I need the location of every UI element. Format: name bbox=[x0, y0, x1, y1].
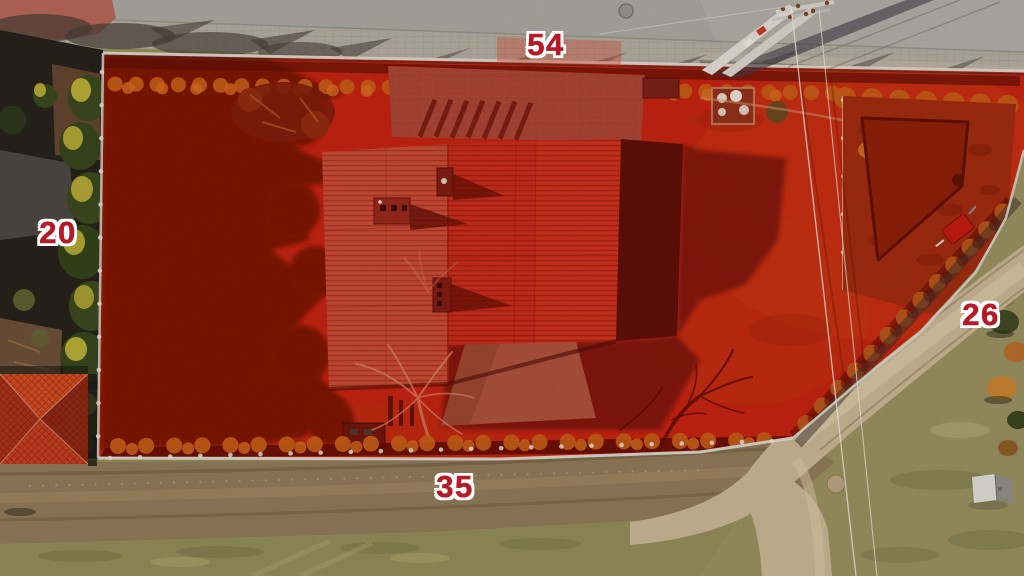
dimension-label-top: 54 bbox=[527, 27, 564, 63]
photo-grain bbox=[0, 0, 1024, 576]
dimension-label-left: 20 bbox=[39, 215, 76, 251]
dimension-label-bottom: 35 bbox=[436, 469, 473, 505]
aerial-plot-photo: 54 20 26 35 bbox=[0, 0, 1024, 576]
dimension-label-right: 26 bbox=[962, 297, 999, 333]
scene bbox=[0, 0, 1024, 576]
